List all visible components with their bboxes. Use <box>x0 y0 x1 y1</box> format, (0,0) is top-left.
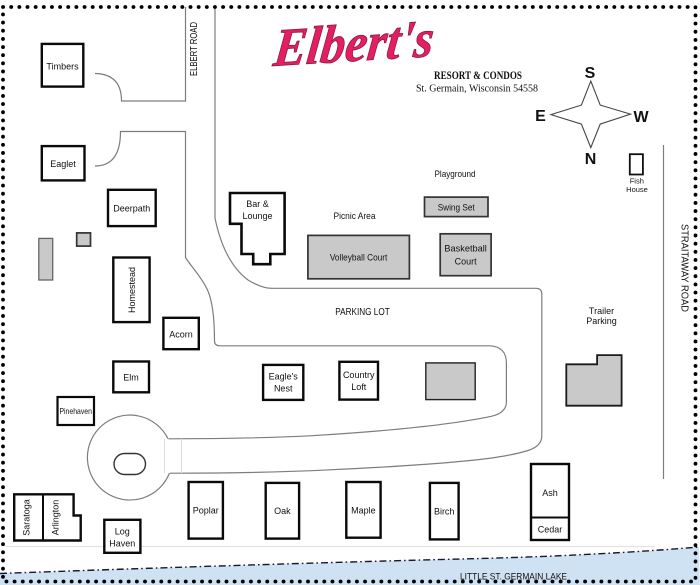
svg-text:Trailer: Trailer <box>589 306 614 316</box>
svg-text:S: S <box>585 65 596 82</box>
svg-text:Saratoga: Saratoga <box>22 499 32 536</box>
svg-text:House: House <box>626 185 648 194</box>
svg-text:Homestead: Homestead <box>127 267 137 313</box>
svg-text:Volleyball Court: Volleyball Court <box>330 253 388 263</box>
svg-text:Loft: Loft <box>351 382 367 392</box>
svg-text:Ash: Ash <box>542 488 558 498</box>
svg-text:N: N <box>585 151 597 168</box>
svg-text:Court: Court <box>455 257 478 267</box>
svg-text:Birch: Birch <box>434 507 455 517</box>
svg-text:E: E <box>535 108 546 125</box>
svg-text:Swing Set: Swing Set <box>438 203 475 213</box>
svg-text:Haven: Haven <box>109 539 135 549</box>
svg-text:Log: Log <box>115 527 130 537</box>
svg-text:Poplar: Poplar <box>193 506 219 516</box>
svg-text:Picnic Area: Picnic Area <box>334 211 376 221</box>
svg-text:Nest: Nest <box>274 384 293 394</box>
svg-text:ELBERT ROAD: ELBERT ROAD <box>189 22 200 76</box>
svg-text:Country: Country <box>343 370 375 380</box>
svg-text:RESORT & CONDOS: RESORT & CONDOS <box>434 70 522 82</box>
svg-text:Acorn: Acorn <box>169 330 193 340</box>
svg-text:Playground: Playground <box>435 169 476 179</box>
svg-text:Lounge: Lounge <box>242 211 272 221</box>
svg-text:Elbert's: Elbert's <box>270 9 437 78</box>
svg-text:Parking: Parking <box>586 316 617 326</box>
svg-text:Deerpath: Deerpath <box>113 204 150 214</box>
svg-text:Eaglet: Eaglet <box>50 159 76 169</box>
svg-text:W: W <box>633 109 649 126</box>
svg-text:Eagle's: Eagle's <box>269 372 299 382</box>
svg-text:LITTLE ST. GERMAIN LAKE: LITTLE ST. GERMAIN LAKE <box>460 572 567 582</box>
svg-text:Elm: Elm <box>123 373 139 383</box>
svg-text:Cedar: Cedar <box>538 525 563 535</box>
svg-text:Arlington: Arlington <box>51 500 61 536</box>
svg-text:St. Germain, Wisconsin 54558: St. Germain, Wisconsin 54558 <box>416 83 538 95</box>
svg-text:Pinehaven: Pinehaven <box>59 407 92 416</box>
svg-text:STRAITAWAY ROAD: STRAITAWAY ROAD <box>679 224 690 312</box>
svg-text:PARKING LOT: PARKING LOT <box>335 307 390 318</box>
svg-text:Timbers: Timbers <box>46 62 79 72</box>
svg-text:Basketball: Basketball <box>444 244 487 254</box>
svg-text:Bar &: Bar & <box>246 199 269 209</box>
svg-text:Oak: Oak <box>274 506 291 516</box>
svg-text:Maple: Maple <box>351 506 376 516</box>
